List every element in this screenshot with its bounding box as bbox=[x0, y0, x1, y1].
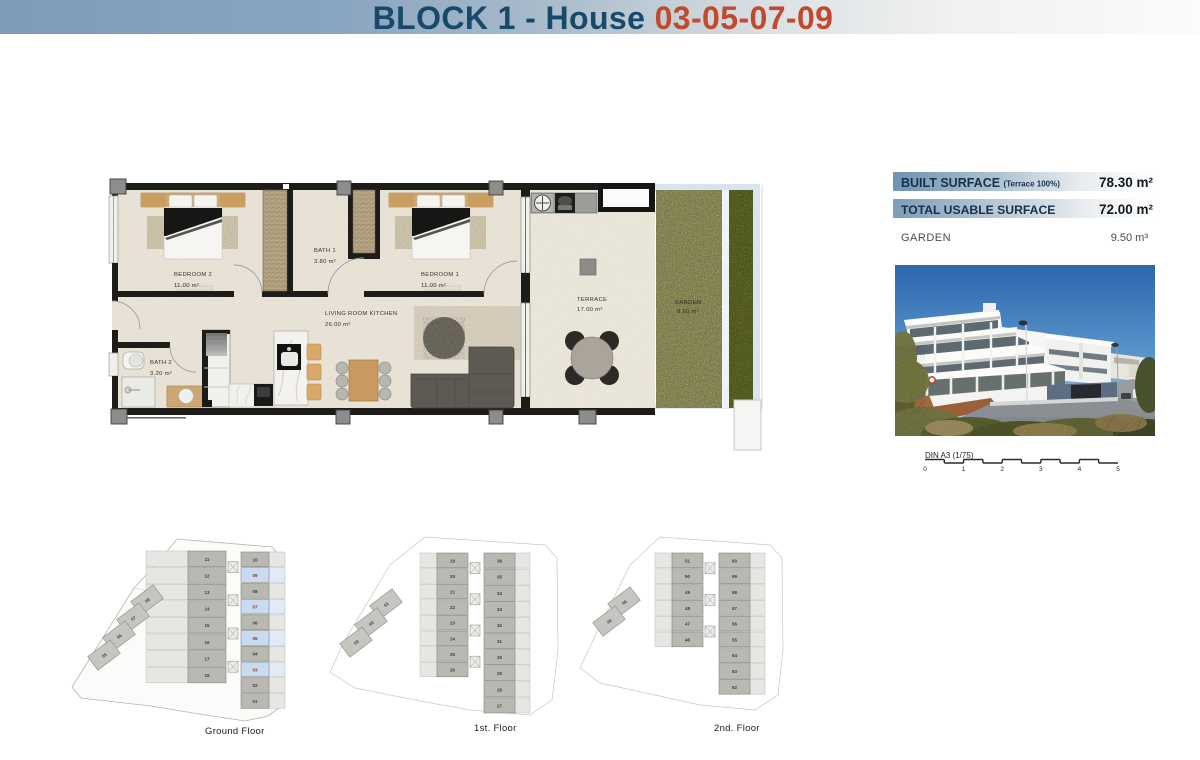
svg-text:BLOCK 1 - House 03-05-07-09: BLOCK 1 - House 03-05-07-09 bbox=[373, 0, 834, 36]
svg-text:1st. Floor: 1st. Floor bbox=[474, 723, 517, 734]
svg-text:50: 50 bbox=[685, 574, 691, 579]
svg-text:19: 19 bbox=[450, 558, 456, 563]
svg-text:14: 14 bbox=[204, 607, 210, 612]
svg-text:21: 21 bbox=[450, 590, 456, 595]
svg-text:54: 54 bbox=[732, 653, 738, 658]
svg-text:51: 51 bbox=[685, 558, 691, 563]
svg-text:13: 13 bbox=[204, 590, 210, 595]
svg-text:4: 4 bbox=[1078, 466, 1082, 473]
svg-text:Ground Floor: Ground Floor bbox=[205, 726, 265, 737]
svg-text:36: 36 bbox=[497, 559, 503, 564]
svg-text:3: 3 bbox=[1039, 466, 1043, 473]
svg-text:33: 33 bbox=[497, 607, 503, 612]
svg-text:35: 35 bbox=[497, 575, 503, 580]
svg-text:78.30 m²: 78.30 m² bbox=[1099, 175, 1154, 190]
svg-text:53: 53 bbox=[732, 669, 738, 674]
svg-text:07: 07 bbox=[252, 605, 258, 610]
svg-text:55: 55 bbox=[732, 637, 738, 642]
svg-text:57: 57 bbox=[732, 606, 738, 611]
svg-text:03: 03 bbox=[252, 668, 258, 673]
svg-text:32: 32 bbox=[497, 623, 503, 628]
svg-text:09: 09 bbox=[252, 573, 258, 578]
svg-text:3.80 m²: 3.80 m² bbox=[314, 259, 336, 265]
svg-text:11.00 m²: 11.00 m² bbox=[174, 283, 199, 289]
svg-text:72.00 m²: 72.00 m² bbox=[1099, 202, 1154, 217]
svg-text:12: 12 bbox=[204, 573, 210, 578]
svg-text:BEDROOM 1: BEDROOM 1 bbox=[421, 272, 459, 278]
svg-text:DIN A3 (1/75): DIN A3 (1/75) bbox=[925, 451, 974, 460]
svg-text:49: 49 bbox=[685, 590, 691, 595]
svg-text:GARDEN: GARDEN bbox=[901, 232, 951, 244]
svg-text:23: 23 bbox=[450, 621, 456, 626]
svg-text:TERRACE: TERRACE bbox=[577, 297, 607, 303]
svg-text:25: 25 bbox=[450, 652, 456, 657]
svg-text:TOTAL USABLE SURFACE: TOTAL USABLE SURFACE bbox=[901, 203, 1055, 217]
svg-text:26.00 m²: 26.00 m² bbox=[325, 322, 351, 328]
svg-text:56: 56 bbox=[732, 622, 738, 627]
svg-text:24: 24 bbox=[450, 636, 456, 641]
svg-text:52: 52 bbox=[732, 685, 738, 690]
svg-text:31: 31 bbox=[497, 639, 503, 644]
svg-text:BATH 1: BATH 1 bbox=[314, 248, 336, 254]
svg-text:BATH 2: BATH 2 bbox=[150, 360, 172, 366]
svg-text:59: 59 bbox=[732, 574, 738, 579]
svg-text:LIVING ROOM KITCHEN: LIVING ROOM KITCHEN bbox=[325, 311, 397, 317]
svg-text:16: 16 bbox=[204, 640, 210, 645]
svg-text:17: 17 bbox=[204, 656, 210, 661]
svg-text:47: 47 bbox=[685, 622, 691, 627]
svg-text:27: 27 bbox=[497, 703, 503, 708]
svg-text:18: 18 bbox=[204, 673, 210, 678]
svg-text:2: 2 bbox=[1000, 466, 1004, 473]
svg-text:46: 46 bbox=[685, 637, 691, 642]
svg-text:34: 34 bbox=[497, 591, 503, 596]
svg-text:05: 05 bbox=[252, 636, 258, 641]
svg-text:9.50 m³: 9.50 m³ bbox=[1111, 232, 1149, 244]
svg-text:GARDEN: GARDEN bbox=[674, 300, 701, 306]
svg-text:15: 15 bbox=[204, 623, 210, 628]
svg-text:48: 48 bbox=[685, 606, 691, 611]
svg-text:11.00 m²: 11.00 m² bbox=[421, 283, 446, 289]
svg-text:BEDROOM 2: BEDROOM 2 bbox=[174, 272, 212, 278]
svg-text:1: 1 bbox=[962, 466, 966, 473]
svg-text:29: 29 bbox=[497, 671, 503, 676]
svg-text:17.00 m²: 17.00 m² bbox=[577, 307, 603, 313]
svg-text:58: 58 bbox=[732, 590, 738, 595]
svg-text:04: 04 bbox=[252, 652, 258, 657]
svg-text:3.20 m²: 3.20 m² bbox=[150, 371, 172, 377]
svg-text:28: 28 bbox=[497, 687, 503, 692]
svg-text:11: 11 bbox=[205, 557, 210, 562]
svg-text:2nd. Floor: 2nd. Floor bbox=[714, 723, 760, 734]
svg-text:30: 30 bbox=[497, 655, 503, 660]
svg-text:0: 0 bbox=[923, 466, 927, 473]
svg-text:26: 26 bbox=[450, 668, 456, 673]
svg-text:08: 08 bbox=[252, 589, 258, 594]
svg-text:22: 22 bbox=[450, 605, 456, 610]
svg-text:9.50 m²: 9.50 m² bbox=[677, 309, 699, 315]
svg-text:60: 60 bbox=[732, 558, 738, 563]
svg-text:10: 10 bbox=[252, 557, 258, 562]
svg-text:06: 06 bbox=[252, 620, 258, 625]
svg-text:01: 01 bbox=[252, 699, 258, 704]
svg-text:20: 20 bbox=[450, 574, 456, 579]
svg-text:5: 5 bbox=[1116, 466, 1120, 473]
svg-text:02: 02 bbox=[252, 683, 258, 688]
